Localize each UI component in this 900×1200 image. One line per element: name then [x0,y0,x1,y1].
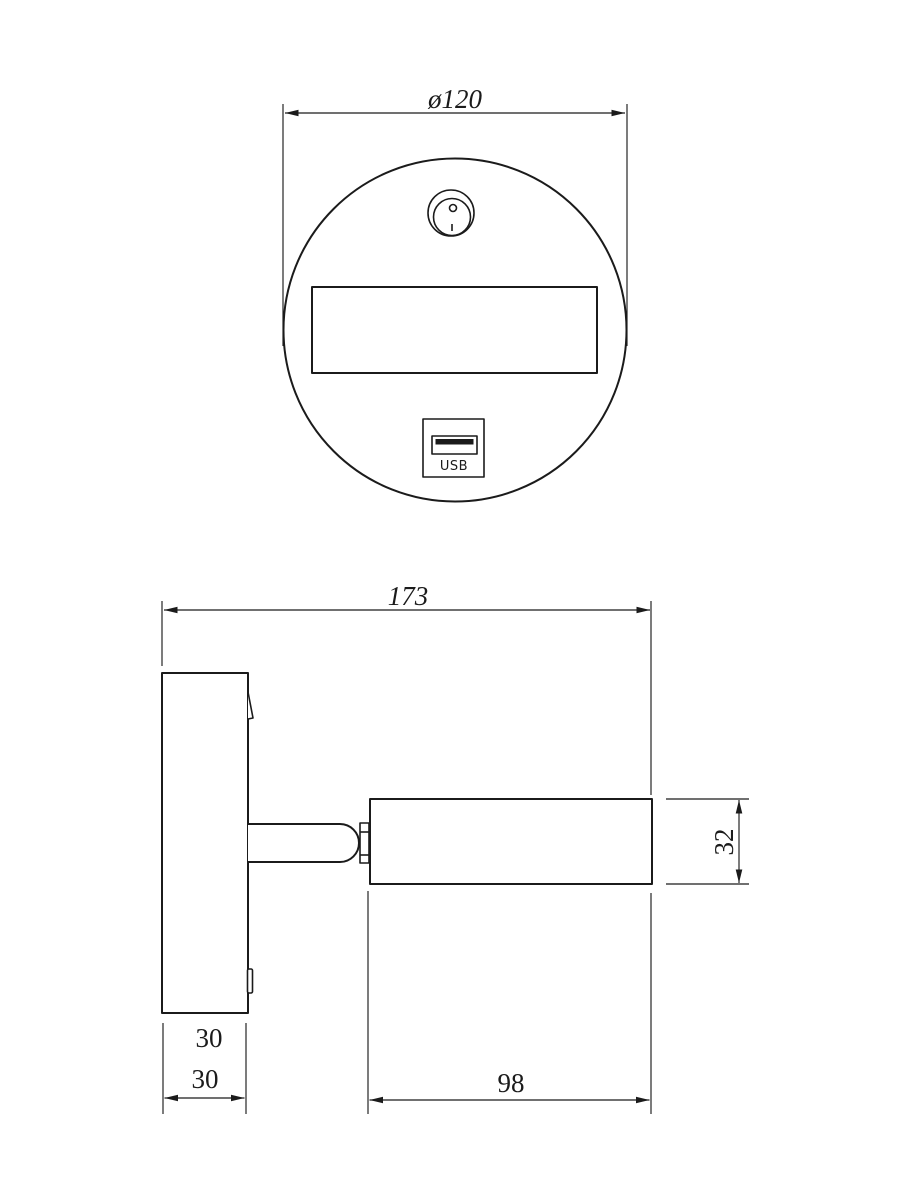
dim-diameter-label: ø120 [427,84,483,114]
lamp-head [370,799,652,884]
usb-socket-tongue [436,439,474,445]
technical-drawing-sheet: ø120 USB 173 [0,0,900,1200]
dim-head-height: 32 [666,799,749,884]
wall-plate [162,673,248,1013]
dim-head-length-label: 98 [498,1068,525,1098]
side-view: 173 32 30 30 [162,581,749,1114]
usb-label: USB [440,459,468,474]
swivel-bracket [360,823,369,863]
usb-socket [432,436,477,454]
wall-lamp-technical-drawing: ø120 USB 173 [0,0,900,1200]
dim-total-width-label: 173 [388,581,429,611]
dim-plate: 30 30 [163,1023,246,1114]
dim-plate-label-lower: 30 [192,1064,219,1094]
dim-head-length: 98 [368,891,650,1114]
dim-diameter: ø120 [283,84,627,346]
dim-head-height-label: 32 [709,829,739,856]
side-usb-bump [248,969,253,993]
top-view: ø120 USB [283,84,627,502]
switch-bezel [428,190,474,236]
light-window [312,287,597,373]
dim-total-width: 173 [162,581,651,1114]
switch-indicator-dot [450,205,457,212]
mounting-arm [248,824,359,862]
rocker-switch-icon [428,190,474,236]
dim-plate-label-upper: 30 [196,1023,223,1053]
bracket-body [360,823,369,863]
side-switch-lever [248,692,253,719]
usb-port-icon: USB [423,419,484,477]
